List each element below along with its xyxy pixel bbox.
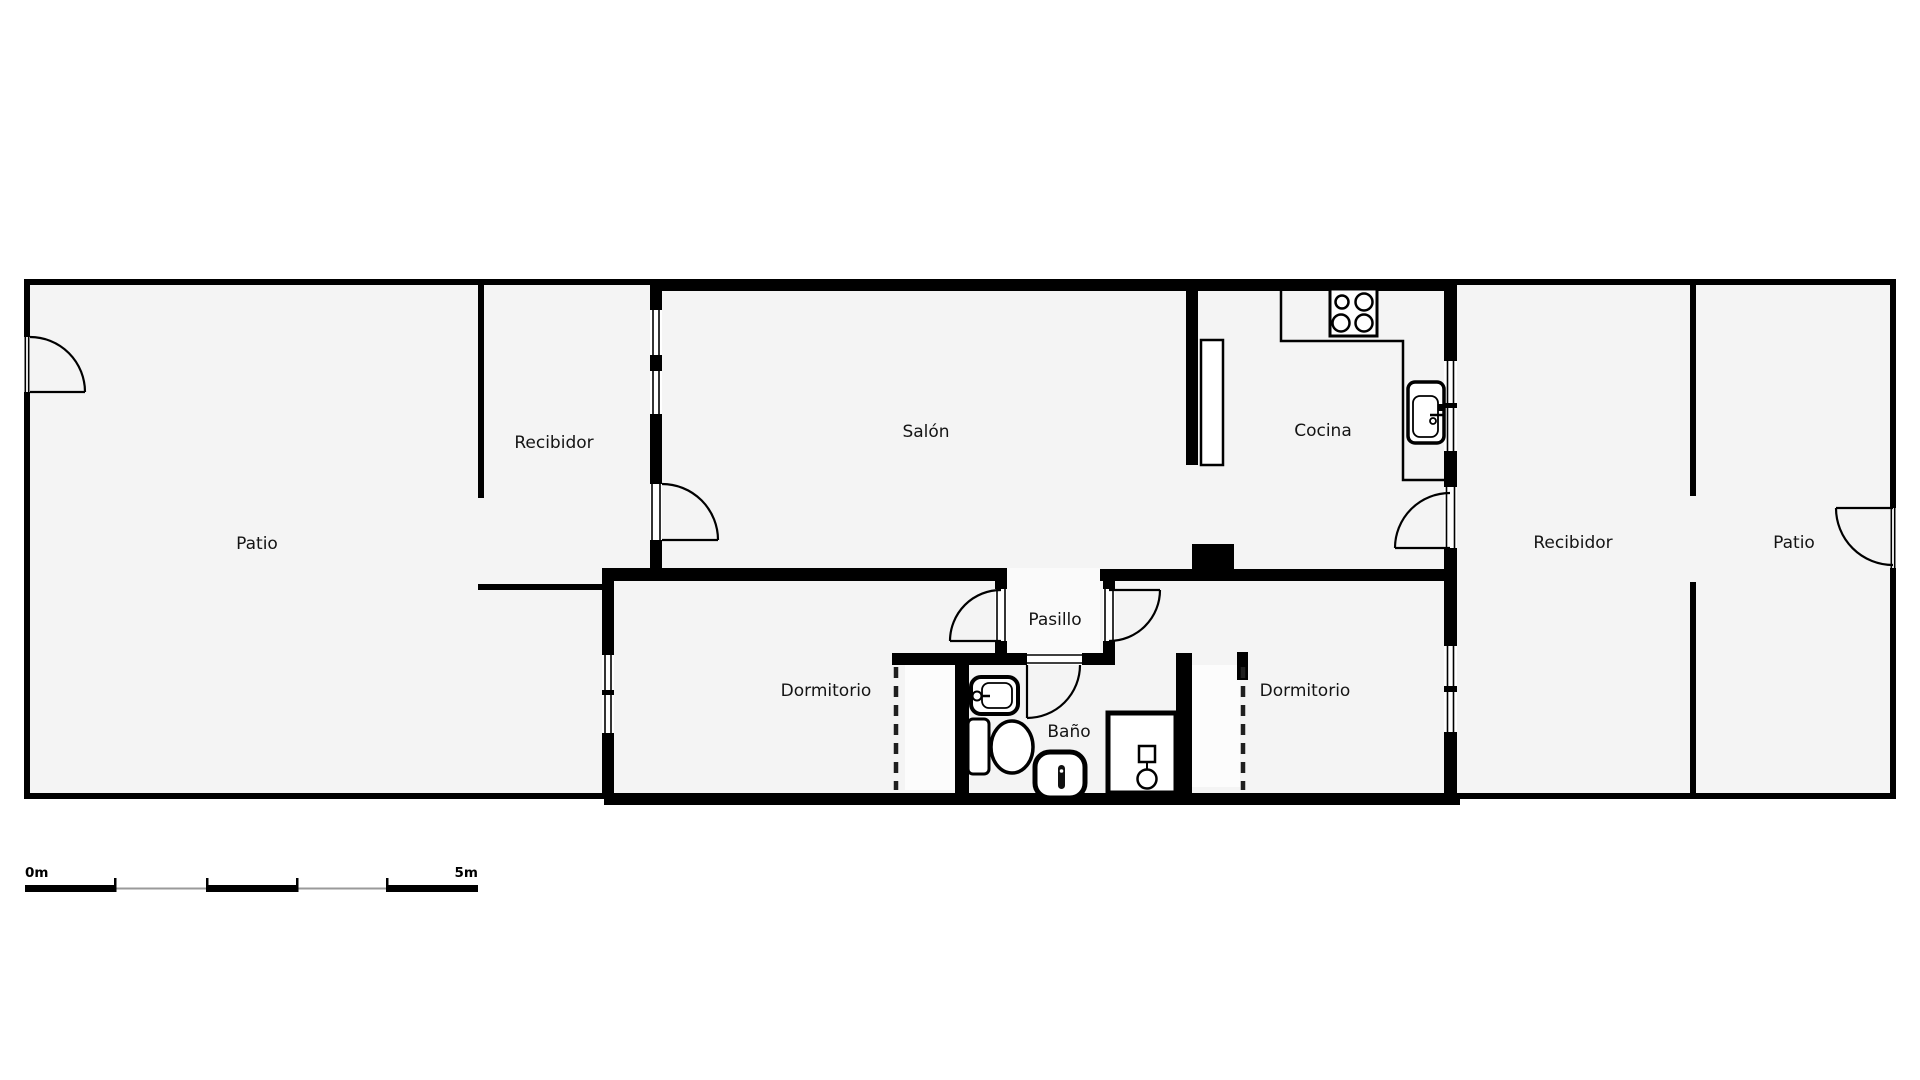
stove-icon: [1330, 289, 1377, 336]
wall-segment: [24, 279, 650, 285]
open-door-leaf: [1201, 340, 1223, 465]
wall-segment: [1100, 569, 1450, 581]
room-label-patio-right: Patio: [1773, 533, 1815, 553]
room-label-pasillo: Pasillo: [1028, 610, 1081, 630]
wall-divider-recibidor-patio-right-lower: [1690, 582, 1696, 793]
wall-segment: [995, 641, 1007, 653]
scale-bar-end-label: 5m: [455, 865, 478, 881]
scale-bar-start-label: 0m: [25, 865, 48, 881]
wall-segment: [24, 392, 30, 799]
floor-wardrobe-right: [1192, 665, 1240, 787]
wall-bano-top-east: [1082, 653, 1115, 665]
room-label-recibidor-right: Recibidor: [1533, 533, 1612, 553]
wall-segment: [24, 793, 604, 799]
wall-segment: [602, 737, 614, 793]
floor-patio-recibidor-left: [30, 285, 650, 793]
window-dormitorio-left-icon: [602, 651, 614, 737]
wall-divider-recibidor-patio-right-upper: [1690, 285, 1696, 496]
wall-segment: [1444, 737, 1457, 793]
wall-segment: [1890, 568, 1896, 799]
wall-pier: [1192, 544, 1234, 569]
bidet-icon: [1035, 752, 1085, 798]
scale-bar-tick: [296, 878, 299, 892]
room-label-dormitorio-right: Dormitorio: [1260, 681, 1351, 701]
scale-bar-segment: [207, 885, 297, 892]
room-label-recibidor-left: Recibidor: [514, 433, 593, 453]
room-label-cocina: Cocina: [1294, 421, 1352, 441]
kitchen-sink-icon: [1408, 382, 1444, 443]
window-salon-upper-icon: [650, 306, 662, 359]
scale-bar-tick: [386, 878, 389, 892]
wall-segment: [650, 359, 662, 367]
toilet-icon: [968, 719, 1033, 774]
floor-recibidor-patio-right: [1457, 285, 1890, 793]
window-dormitorio-right-icon: [1444, 641, 1457, 737]
wall-segment: [1444, 291, 1457, 357]
wall-segment: [1103, 581, 1115, 589]
floor-wardrobe-left: [905, 665, 955, 790]
room-label-patio-left: Patio: [236, 534, 278, 554]
wall-segment: [1460, 793, 1896, 799]
wall-segment: [1890, 279, 1896, 508]
floor-plan-canvas: Patio Recibidor Salón Cocina Pasillo Dor…: [0, 0, 1920, 1080]
wall-divider-patio-recibidor-left: [478, 285, 484, 498]
wall-recibidor-left-bottom: [478, 584, 604, 590]
wall-segment: [1444, 548, 1457, 641]
floor-plan: Patio Recibidor Salón Cocina Pasillo Dor…: [0, 0, 1920, 1080]
wall-segment: [1444, 455, 1457, 487]
wall-segment: [602, 581, 614, 651]
wall-segment: [1103, 641, 1115, 653]
window-salon-lower-icon: [650, 367, 662, 418]
wall-segment: [1457, 279, 1896, 285]
room-label-dormitorio-left: Dormitorio: [781, 681, 872, 701]
wall-segment: [24, 279, 30, 337]
room-label-salon: Salón: [902, 422, 949, 442]
scale-bar-segment: [115, 888, 207, 890]
scale-bar-tick: [206, 878, 209, 892]
bathroom-sink-icon: [971, 677, 1018, 714]
wall-partition-salon-cocina: [1186, 291, 1198, 465]
wall-segment: [604, 793, 1460, 805]
scale-bar-segment: [387, 885, 478, 892]
window-cocina-icon: [1444, 357, 1457, 455]
wall-segment: [602, 568, 1007, 581]
scale-bar-segment: [297, 888, 387, 890]
scale-bar-tick: [114, 878, 117, 892]
wall-segment: [995, 581, 1007, 589]
shower-icon: [1108, 713, 1176, 793]
wall-segment: [650, 418, 662, 484]
scale-bar-segment: [25, 885, 115, 892]
room-label-bano: Baño: [1047, 722, 1090, 742]
wall-segment: [650, 291, 662, 306]
